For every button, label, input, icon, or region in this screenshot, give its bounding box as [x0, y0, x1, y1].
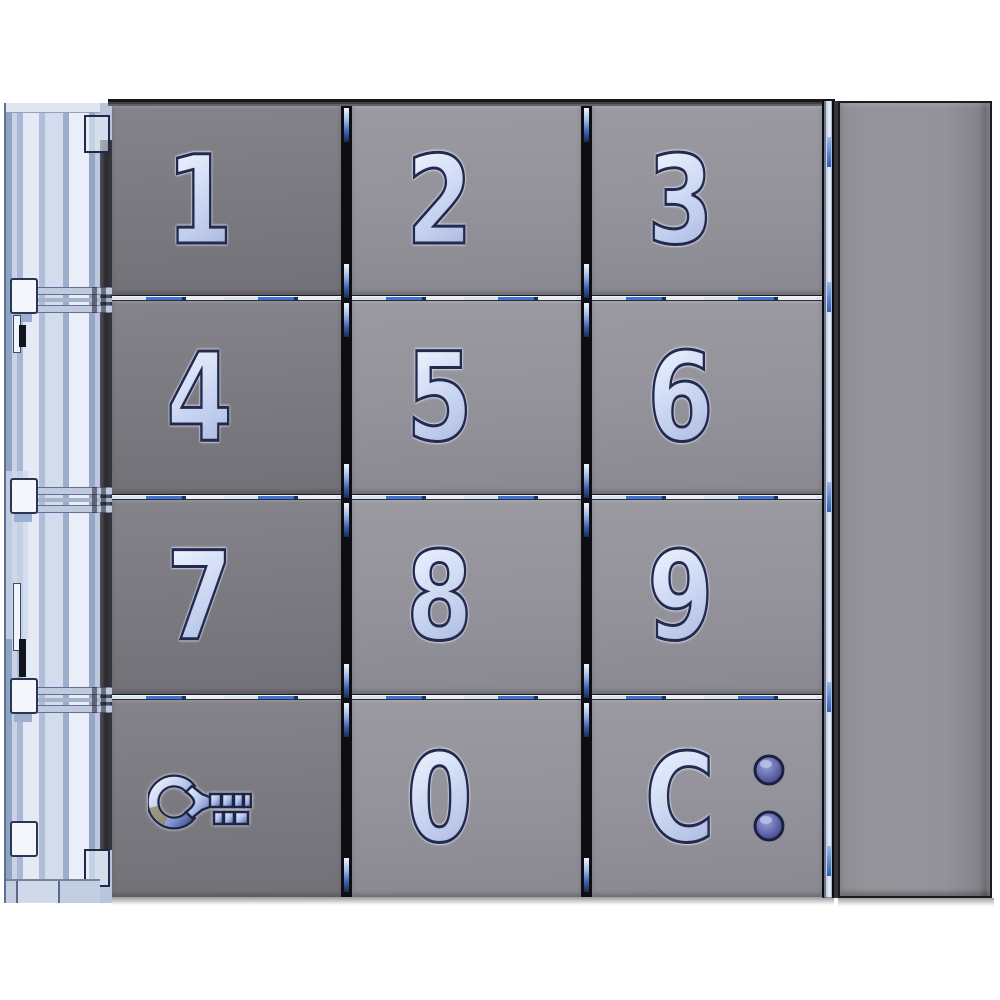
key-unlock[interactable]	[112, 700, 341, 897]
key-5[interactable]: 5	[352, 301, 581, 494]
mounting-frame-left	[4, 103, 112, 903]
latch-tab	[10, 678, 38, 714]
latch-tab	[10, 821, 38, 857]
key-label: 5	[406, 337, 472, 459]
latch-checker	[92, 687, 110, 713]
led-colon-icon	[747, 726, 791, 844]
key-clear[interactable]: C	[592, 700, 822, 897]
key-gap-vertical	[581, 106, 592, 897]
key-column-2: 2 5 8 0	[352, 106, 581, 897]
latch-tab-foot	[14, 514, 32, 522]
key-label: 2	[406, 140, 472, 262]
key-label: C	[645, 738, 715, 860]
key-label: 1	[166, 140, 232, 262]
panel-top-edge	[108, 99, 835, 106]
frame-cap-top	[6, 103, 100, 113]
frame-slot-dark	[19, 325, 26, 347]
key-label: 8	[406, 536, 472, 658]
blank-module	[838, 101, 992, 898]
key-6[interactable]: 6	[592, 301, 822, 494]
key-label: 3	[647, 140, 713, 262]
latch-checker	[92, 287, 110, 313]
led-highlight	[760, 760, 772, 768]
drop-shadow	[112, 897, 834, 905]
drop-shadow	[838, 898, 994, 906]
key-icon	[148, 774, 252, 834]
key-4[interactable]: 4	[112, 301, 341, 494]
latch-checker	[92, 487, 110, 513]
latch-tab	[10, 278, 38, 314]
latch-tab	[10, 478, 38, 514]
frame-cap-bottom	[6, 879, 100, 903]
key-gap-vertical	[341, 106, 352, 897]
key-label: 6	[647, 337, 713, 459]
frame-bracket	[84, 115, 110, 153]
key-7[interactable]: 7	[112, 500, 341, 694]
key-label: 7	[166, 536, 232, 658]
led-upper	[755, 756, 783, 784]
led-lower	[755, 812, 783, 840]
key-label: 0	[406, 738, 472, 860]
key-0[interactable]: 0	[352, 700, 581, 897]
key-9[interactable]: 9	[592, 500, 822, 694]
key-3[interactable]: 3	[592, 106, 822, 295]
key-2[interactable]: 2	[352, 106, 581, 295]
key-column-3: 3 6 9 C	[592, 106, 822, 897]
key-1[interactable]: 1	[112, 106, 341, 295]
latch-tab-foot	[14, 714, 32, 722]
keypad-panel: 1 4 7	[0, 0, 1000, 1000]
key-label: 9	[647, 536, 713, 658]
led-highlight	[760, 816, 772, 824]
key-column-1: 1 4 7	[112, 106, 341, 897]
module-gap	[822, 101, 838, 898]
frame-slot-dark	[19, 639, 26, 677]
key-8[interactable]: 8	[352, 500, 581, 694]
key-label: 4	[166, 337, 232, 459]
